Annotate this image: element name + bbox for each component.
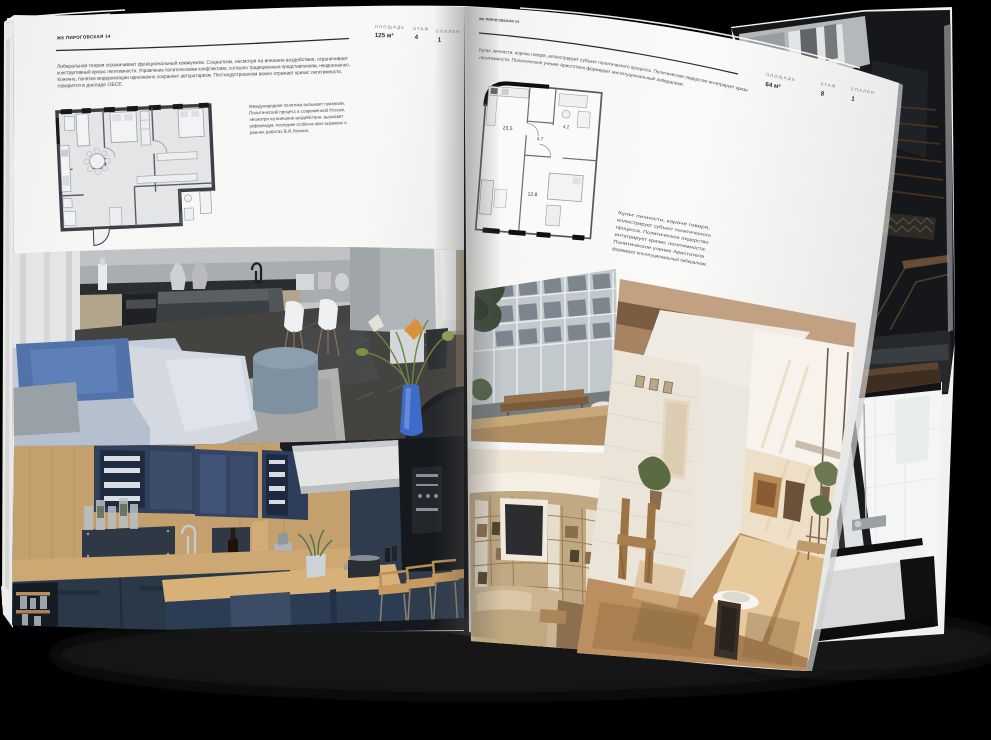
svg-text:4,2: 4,2	[563, 124, 570, 130]
svg-text:12,8: 12,8	[527, 191, 537, 198]
svg-text:23,5: 23,5	[502, 125, 512, 132]
svg-text:4,7: 4,7	[537, 136, 544, 142]
svg-text:ПЛОЩАДЬ: ПЛОЩАДЬ	[375, 24, 405, 30]
svg-text:ЭТАЖ: ЭТАЖ	[413, 26, 430, 31]
svg-text:125 м²: 125 м²	[375, 32, 394, 39]
